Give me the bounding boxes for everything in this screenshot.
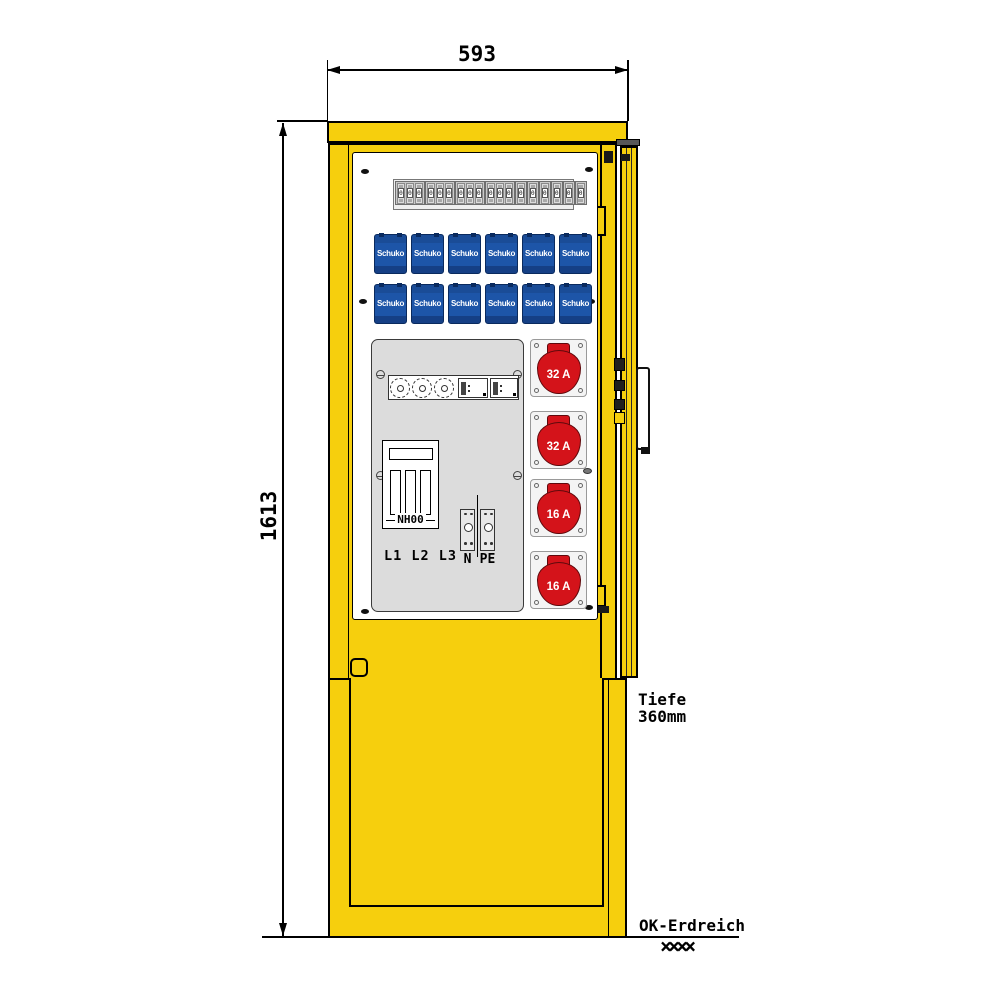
terminal-connector-icon — [493, 382, 498, 395]
nh00-fuse-slot — [405, 470, 416, 515]
height-dimension-line — [282, 123, 284, 936]
terminal-dot — [470, 513, 473, 516]
terminal-corner-mark — [483, 393, 486, 396]
schuko-label: Schuko — [449, 250, 480, 258]
screw-icon — [578, 555, 583, 560]
arrowhead-right-icon — [615, 66, 628, 74]
screw-icon — [534, 460, 539, 465]
breaker-clip — [429, 199, 433, 202]
breaker-module: 0 — [397, 183, 405, 204]
breaker-toggle: 0 — [506, 188, 512, 198]
breaker-group: 000 — [425, 181, 455, 206]
screw-icon — [534, 528, 539, 533]
nh00-top-bar — [389, 448, 433, 460]
schuko-socket-row-2: SchukoSchukoSchukoSchukoSchukoSchuko — [374, 284, 592, 324]
breaker-clip — [399, 199, 403, 202]
breaker-toggle: 0 — [428, 188, 434, 198]
schuko-socket: Schuko — [485, 284, 518, 324]
schuko-label: Schuko — [560, 250, 591, 258]
terminal-dot — [468, 390, 470, 392]
door-hinge-top-1 — [604, 151, 613, 163]
depth-annotation: Tiefe 360mm — [638, 691, 686, 725]
schuko-label: Schuko — [560, 300, 591, 308]
arrowhead-up-icon — [279, 123, 287, 136]
breaker-module: 0 — [505, 183, 513, 204]
breaker-group: 000 — [485, 181, 515, 206]
breaker-clip — [489, 199, 493, 202]
door-lock-block-3 — [614, 399, 625, 410]
schuko-socket: Schuko — [374, 284, 407, 324]
neutral-terminal — [460, 509, 475, 551]
circuit-breaker-row: 000000000000000000 — [393, 179, 574, 210]
cee-socket-16a: 16 A — [530, 551, 587, 609]
depth-label-line2: 360mm — [638, 708, 686, 725]
schuko-label: Schuko — [449, 300, 480, 308]
breaker-toggle: 0 — [458, 188, 464, 198]
breaker-module: 0 — [436, 183, 444, 204]
breaker-toggle: 0 — [398, 188, 404, 198]
ground-hatch: ×××× — [660, 934, 692, 958]
panel-screw-icon — [585, 167, 593, 172]
schuko-socket: Schuko — [448, 284, 481, 324]
terminal-dot — [500, 390, 502, 392]
schuko-socket: Schuko — [559, 234, 592, 274]
seal-screw-icon — [390, 378, 410, 398]
width-dimension-label: 593 — [427, 42, 527, 66]
door-lock-block-2 — [614, 380, 625, 391]
technical-drawing-canvas: 593 1613 OK-Erdreich ×××× Tiefe 360mm — [0, 0, 1000, 1000]
cee-socket-32a: 32 A — [530, 339, 587, 397]
cee-rating-label: 16 A — [531, 581, 586, 593]
schuko-socket: Schuko — [522, 284, 555, 324]
breaker-clip — [531, 199, 535, 202]
schuko-socket: Schuko — [559, 284, 592, 324]
breaker-toggle: 0 — [578, 188, 584, 198]
equipment-panel: 000000000000000000 SchukoSchukoSchukoSch… — [352, 152, 598, 620]
breaker-module: 0 — [577, 183, 585, 204]
breaker-group: 0 — [575, 181, 587, 206]
breaker-clip — [438, 199, 442, 202]
door-hinge-bottom-left — [350, 658, 368, 677]
terminal-dot — [464, 542, 467, 545]
breaker-toggle: 0 — [554, 188, 560, 198]
breaker-group: 0 — [515, 181, 527, 206]
nh00-fuse-slot — [420, 470, 431, 515]
cee-rating-label: 32 A — [531, 369, 586, 381]
meter-panel: NH00 L1 L2 L3 N PE — [371, 339, 524, 612]
panel-screw-icon — [361, 609, 369, 614]
breaker-module: 0 — [466, 183, 474, 204]
breaker-module: 0 — [415, 183, 423, 204]
breaker-clip — [543, 199, 547, 202]
breaker-module: 0 — [529, 183, 537, 204]
breaker-clip — [578, 199, 582, 202]
breaker-module: 0 — [553, 183, 561, 204]
earth-terminal — [480, 509, 495, 551]
arrowhead-down-icon — [279, 923, 287, 936]
terminal-dot — [500, 385, 502, 387]
terminal-dot — [484, 513, 487, 516]
seal-screw-center — [397, 385, 404, 392]
earth-label: PE — [478, 552, 497, 567]
panel-screw-icon — [361, 169, 369, 174]
door-handle — [636, 367, 650, 450]
breaker-clip — [519, 199, 523, 202]
terminal-dot — [490, 542, 493, 545]
screw-icon — [534, 388, 539, 393]
breaker-toggle: 0 — [542, 188, 548, 198]
breaker-group: 0 — [527, 181, 539, 206]
door-handle-foot — [641, 447, 650, 454]
screw-icon — [534, 600, 539, 605]
breaker-module: 0 — [475, 183, 483, 204]
schuko-socket: Schuko — [522, 234, 555, 274]
cee-socket-16a: 16 A — [530, 479, 587, 537]
seal-screw-center — [441, 385, 448, 392]
screw-icon — [578, 388, 583, 393]
schuko-socket-row-1: SchukoSchukoSchukoSchukoSchukoSchuko — [374, 234, 592, 274]
terminal-connector-icon — [461, 382, 466, 395]
breaker-group: 000 — [395, 181, 425, 206]
breaker-module: 0 — [517, 183, 525, 204]
arrowhead-left-icon — [327, 66, 340, 74]
height-dimension-label: 1613 — [257, 485, 279, 547]
breaker-module: 0 — [541, 183, 549, 204]
schuko-label: Schuko — [523, 250, 554, 258]
terminal-dot — [464, 513, 467, 516]
screw-icon — [578, 483, 583, 488]
screw-icon — [534, 343, 539, 348]
door-frame-line-left — [348, 145, 350, 678]
breaker-module: 0 — [445, 183, 453, 204]
terminal-cover — [490, 378, 518, 398]
screw-icon — [578, 528, 583, 533]
breaker-module: 0 — [406, 183, 414, 204]
screw-icon — [534, 415, 539, 420]
schuko-socket: Schuko — [411, 234, 444, 274]
breaker-toggle: 0 — [530, 188, 536, 198]
breaker-clip — [459, 199, 463, 202]
cable-grommet-icon — [583, 468, 592, 474]
cee-rating-label: 16 A — [531, 509, 586, 521]
breaker-toggle: 0 — [566, 188, 572, 198]
screw-icon — [578, 460, 583, 465]
phase-label: L1 L2 L3 — [384, 548, 457, 564]
terminal-cover — [458, 378, 488, 398]
schuko-label: Schuko — [375, 300, 406, 308]
breaker-group: 0 — [539, 181, 551, 206]
breaker-clip — [555, 199, 559, 202]
height-extension-line-top — [277, 120, 328, 122]
breaker-clip — [567, 199, 571, 202]
nh00-label: NH00 — [383, 514, 438, 526]
breaker-clip — [417, 199, 421, 202]
slotted-screw-icon — [376, 370, 385, 379]
base-side-line — [608, 680, 610, 936]
seal-screw-icon — [434, 378, 454, 398]
breaker-clip — [477, 199, 481, 202]
breaker-toggle: 0 — [518, 188, 524, 198]
schuko-label: Schuko — [523, 300, 554, 308]
seal-screw-center — [419, 385, 426, 392]
schuko-socket: Schuko — [411, 284, 444, 324]
screw-icon — [534, 483, 539, 488]
cee-socket-32a: 32 A — [530, 411, 587, 469]
door-latch — [614, 412, 625, 424]
nh00-fuse-switch: NH00 — [382, 440, 439, 529]
screw-icon — [578, 343, 583, 348]
breaker-toggle: 0 — [407, 188, 413, 198]
width-dimension-line — [327, 69, 628, 71]
breaker-clip — [408, 199, 412, 202]
ground-level-label: OK-Erdreich — [639, 917, 745, 934]
breaker-toggle: 0 — [416, 188, 422, 198]
breaker-toggle: 0 — [467, 188, 473, 198]
breaker-module: 0 — [565, 183, 573, 204]
breaker-toggle: 0 — [488, 188, 494, 198]
breaker-toggle: 0 — [437, 188, 443, 198]
breaker-clip — [507, 199, 511, 202]
door-edge-line-1 — [626, 148, 627, 676]
screw-icon — [578, 415, 583, 420]
schuko-socket: Schuko — [485, 234, 518, 274]
terminal-corner-mark — [513, 393, 516, 396]
breaker-toggle: 0 — [446, 188, 452, 198]
breaker-module: 0 — [487, 183, 495, 204]
terminal-dot — [490, 513, 493, 516]
depth-label-line1: Tiefe — [638, 691, 686, 708]
breaker-toggle: 0 — [476, 188, 482, 198]
panel-screw-icon — [359, 299, 367, 304]
breaker-module: 0 — [427, 183, 435, 204]
schuko-label: Schuko — [375, 250, 406, 258]
slotted-screw-icon — [513, 471, 522, 480]
breaker-clip — [498, 199, 502, 202]
breaker-clip — [468, 199, 472, 202]
screw-icon — [534, 555, 539, 560]
terminal-dot — [484, 542, 487, 545]
terminal-dot — [470, 542, 473, 545]
door-edge-line-2 — [631, 148, 632, 676]
schuko-label: Schuko — [412, 250, 443, 258]
neutral-label: N — [460, 552, 475, 567]
terminal-circle — [484, 523, 493, 532]
screw-icon — [578, 600, 583, 605]
terminal-circle — [464, 523, 473, 532]
schuko-label: Schuko — [412, 300, 443, 308]
terminal-dot — [468, 385, 470, 387]
cabinet-roof — [327, 121, 628, 143]
schuko-label: Schuko — [486, 250, 517, 258]
npe-separator-line — [477, 495, 479, 557]
schuko-socket: Schuko — [374, 234, 407, 274]
breaker-module: 0 — [457, 183, 465, 204]
breaker-group: 0 — [563, 181, 575, 206]
breaker-group: 000 — [455, 181, 485, 206]
seal-screw-icon — [412, 378, 432, 398]
cee-socket-column: 32 A32 A16 A16 A — [530, 339, 587, 609]
door-lock-block-1 — [614, 358, 625, 371]
breaker-clip — [447, 199, 451, 202]
schuko-socket: Schuko — [448, 234, 481, 274]
breaker-group: 0 — [551, 181, 563, 206]
cee-rating-label: 32 A — [531, 441, 586, 453]
door-top-cap — [616, 139, 640, 146]
breaker-toggle: 0 — [497, 188, 503, 198]
schuko-label: Schuko — [486, 300, 517, 308]
meter-terminal-strip — [388, 375, 519, 400]
nh00-fuse-slot — [390, 470, 401, 515]
base-front-panel — [349, 678, 604, 907]
door-hinge-top-2 — [621, 154, 630, 161]
breaker-module: 0 — [496, 183, 504, 204]
